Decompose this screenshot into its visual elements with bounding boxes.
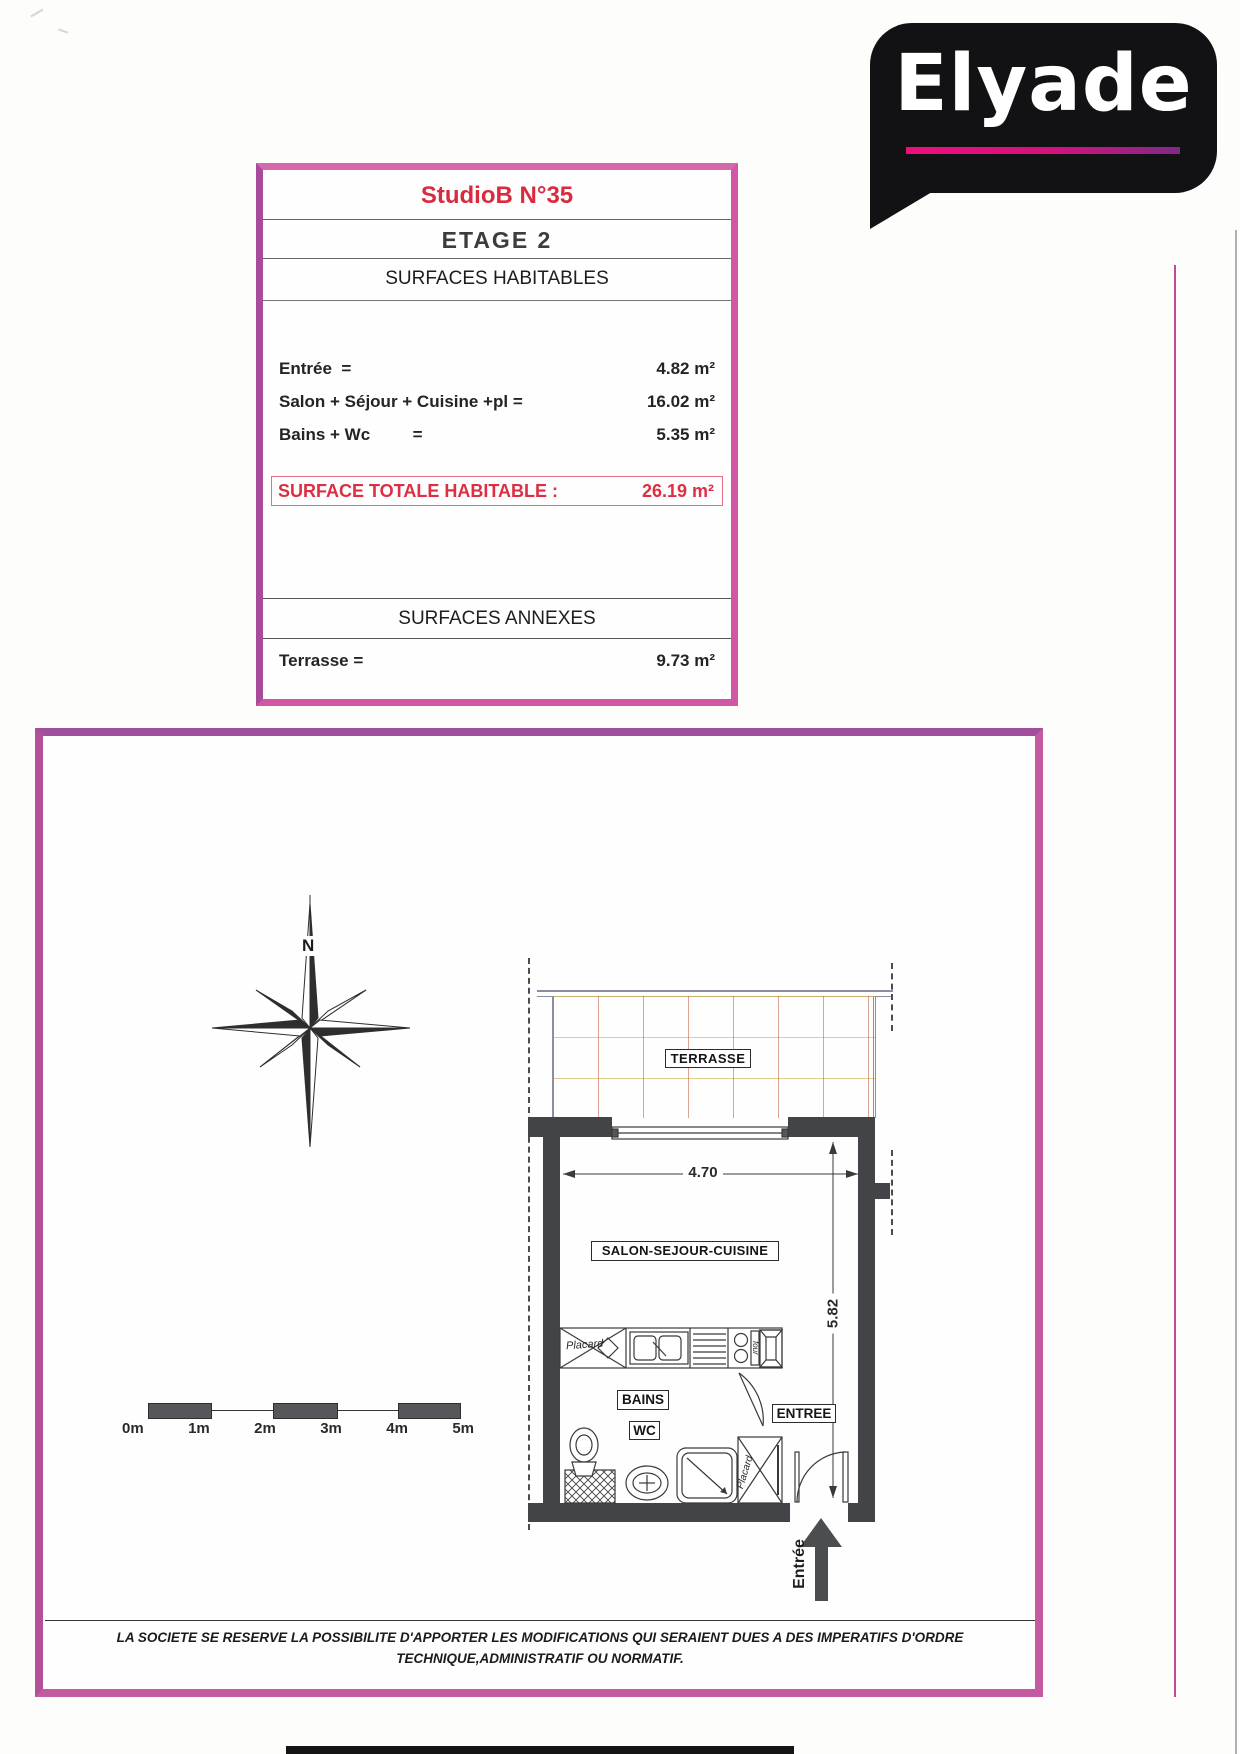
surface-row-label: Terrasse =	[279, 651, 363, 671]
disclaimer-line1: LA SOCIETE SE RESERVE LA POSSIBILITE D'A…	[45, 1627, 1035, 1648]
dimension-depth-label: 5.82	[825, 1294, 842, 1334]
surface-row-value: 16.02 m²	[647, 392, 715, 425]
north-label: N	[301, 936, 315, 956]
scale-bar-segment	[148, 1403, 212, 1419]
surface-row-salon: Salon + Séjour + Cuisine +pl = 16.02 m²	[279, 392, 715, 425]
disclaimer-text: LA SOCIETE SE RESERVE LA POSSIBILITE D'A…	[45, 1627, 1035, 1669]
surface-row-value: 9.73 m²	[656, 651, 715, 671]
section-surfaces-annexes: SURFACES ANNEXES	[263, 598, 731, 639]
wc-label: WC	[629, 1421, 660, 1440]
scan-next-page-edge	[286, 1746, 794, 1754]
boundary-dashed-line	[891, 963, 893, 1031]
floor-title: ETAGE 2	[263, 220, 731, 259]
total-surface-label: SURFACE TOTALE HABITABLE :	[278, 481, 558, 502]
compass-rose-icon	[198, 895, 423, 1150]
terrasse-label: TERRASSE	[665, 1049, 751, 1068]
surface-rows: Entrée = 4.82 m² Salon + Séjour + Cuisin…	[263, 301, 731, 458]
scale-label: 5m	[452, 1420, 474, 1437]
surface-row-entree: Entrée = 4.82 m²	[279, 359, 715, 392]
disclaimer-separator	[45, 1620, 1035, 1621]
section-surfaces-habitables: SURFACES HABITABLES	[263, 259, 731, 301]
scale-label: 3m	[320, 1420, 342, 1437]
scanned-floorplan-page: Elyade StudioB N°35 ETAGE 2 SURFACES HAB…	[0, 0, 1240, 1754]
surface-row-label: Bains + Wc =	[279, 425, 423, 458]
scale-bar-segment	[398, 1403, 461, 1419]
total-surface-value: 26.19 m²	[642, 481, 714, 502]
entrance-arrow-icon	[815, 1546, 828, 1601]
scan-edge-line	[1235, 230, 1237, 1754]
scale-label: 2m	[254, 1420, 276, 1437]
surface-row-label: Salon + Séjour + Cuisine +pl =	[279, 392, 523, 425]
elyade-logo-text: Elyade	[870, 39, 1217, 129]
scan-artifact	[58, 28, 68, 33]
dimension-width-label: 4.70	[683, 1164, 723, 1181]
entrance-arrow-label: Entrée	[791, 1522, 809, 1606]
studio-title: StudioB N°35	[263, 170, 731, 220]
disclaimer-line2: TECHNIQUE,ADMINISTRATIF OU NORMATIF.	[45, 1648, 1035, 1669]
salon-sejour-cuisine-label: SALON-SEJOUR-CUISINE	[591, 1241, 779, 1261]
scale-bar-segment	[273, 1403, 338, 1419]
scale-bar-labels: 0m 1m 2m 3m 4m 5m	[122, 1420, 474, 1437]
elyade-logo: Elyade	[870, 23, 1217, 193]
surface-row-bains: Bains + Wc = 5.35 m²	[279, 425, 715, 458]
scale-label: 4m	[386, 1420, 408, 1437]
surface-row-value: 4.82 m²	[656, 359, 715, 392]
elyade-logo-underline	[906, 147, 1180, 154]
four-label: four	[751, 1341, 760, 1355]
total-surface-box: SURFACE TOTALE HABITABLE : 26.19 m²	[271, 476, 723, 506]
scan-artifact	[30, 9, 43, 18]
surface-row-value: 5.35 m²	[656, 425, 715, 458]
surface-row-label: Entrée =	[279, 359, 351, 392]
surface-row-terrasse: Terrasse = 9.73 m²	[263, 639, 731, 699]
surface-info-box: StudioB N°35 ETAGE 2 SURFACES HABITABLES…	[256, 163, 738, 706]
scale-label: 1m	[188, 1420, 210, 1437]
scale-label: 0m	[122, 1420, 144, 1437]
entree-label: ENTREE	[772, 1404, 836, 1423]
scan-fold-line	[1174, 265, 1176, 1697]
bains-label: BAINS	[617, 1390, 669, 1410]
